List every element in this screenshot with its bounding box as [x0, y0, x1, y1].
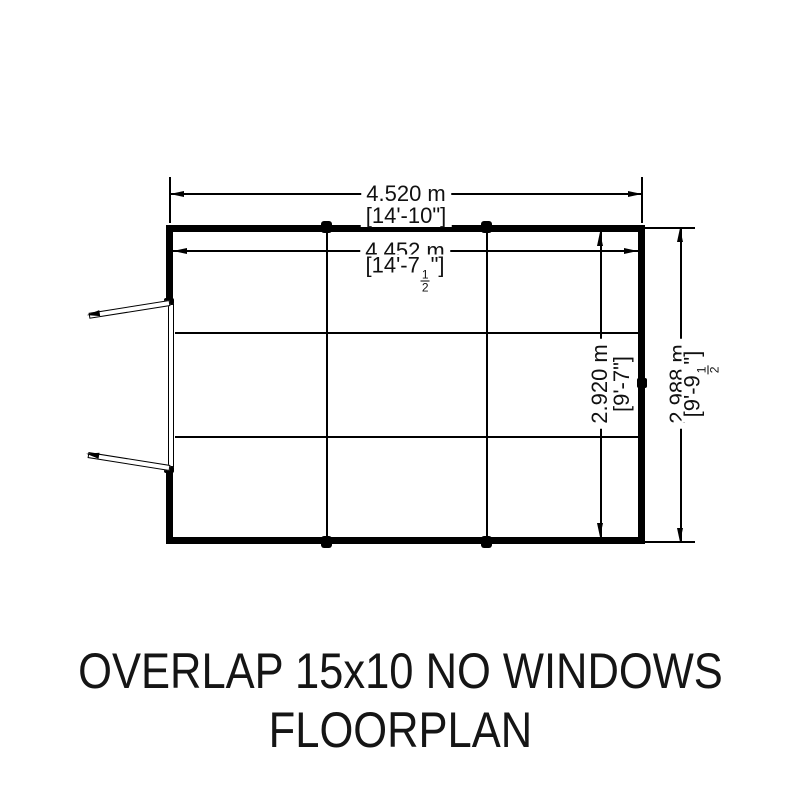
dimension-arrow-icon [677, 528, 683, 542]
dimension-label-outer-width-imperial: [14'-10"] [361, 205, 452, 227]
dimension-label-outer-width-metric: 4.520 m [361, 183, 451, 205]
extension-line-outer-width-right [641, 177, 643, 223]
dimension-arrow-icon [597, 523, 603, 537]
page: { "drawing": { "title_line1": "OVERLAP 1… [0, 0, 800, 800]
drawing-title-line1: OVERLAP 15x10 NO WINDOWS [78, 642, 723, 701]
door-leaf-top [89, 300, 171, 319]
dimension-arrow-icon [677, 228, 683, 242]
panel-junction-nub-bottom-1 [321, 536, 332, 548]
dimension-label-inner-depth-metric: 2.920 m [589, 339, 611, 429]
extension-line-outer-depth-top [645, 227, 695, 229]
dimension-label-inner-depth-imperial: [9'-7"] [611, 351, 633, 417]
panel-junction-nub-right [637, 378, 647, 388]
door-swing-arrow-icon [86, 451, 100, 459]
extension-line-outer-width-left [169, 177, 171, 223]
door-threshold-line [168, 304, 174, 467]
panel-joint-line-vertical-1 [326, 232, 328, 538]
door-leaf-bottom [88, 452, 171, 471]
dimension-arrow-icon [624, 248, 638, 254]
panel-junction-nub-top-1 [321, 221, 332, 233]
dimension-arrow-icon [597, 232, 603, 246]
dimension-label-inner-width-imperial: [14'-712"] [361, 255, 450, 294]
panel-junction-nub-top-2 [481, 221, 492, 233]
dimension-label-outer-depth-imperial: [9'-912"] [682, 346, 721, 423]
drawing-title: OVERLAP 15x10 NO WINDOWS FLOORPLAN [0, 642, 800, 760]
panel-joint-line-horizontal-2 [173, 436, 638, 438]
door-swing-arrow-icon [86, 310, 100, 318]
panel-joint-line-horizontal-1 [173, 332, 638, 334]
dimension-arrow-icon [170, 191, 184, 197]
dimension-arrow-icon [173, 248, 187, 254]
panel-junction-nub-bottom-2 [481, 536, 492, 548]
dimension-arrow-icon [628, 191, 642, 197]
panel-joint-line-vertical-2 [486, 232, 488, 538]
extension-line-outer-depth-bottom [645, 541, 695, 543]
drawing-title-line2: FLOORPLAN [268, 701, 531, 760]
